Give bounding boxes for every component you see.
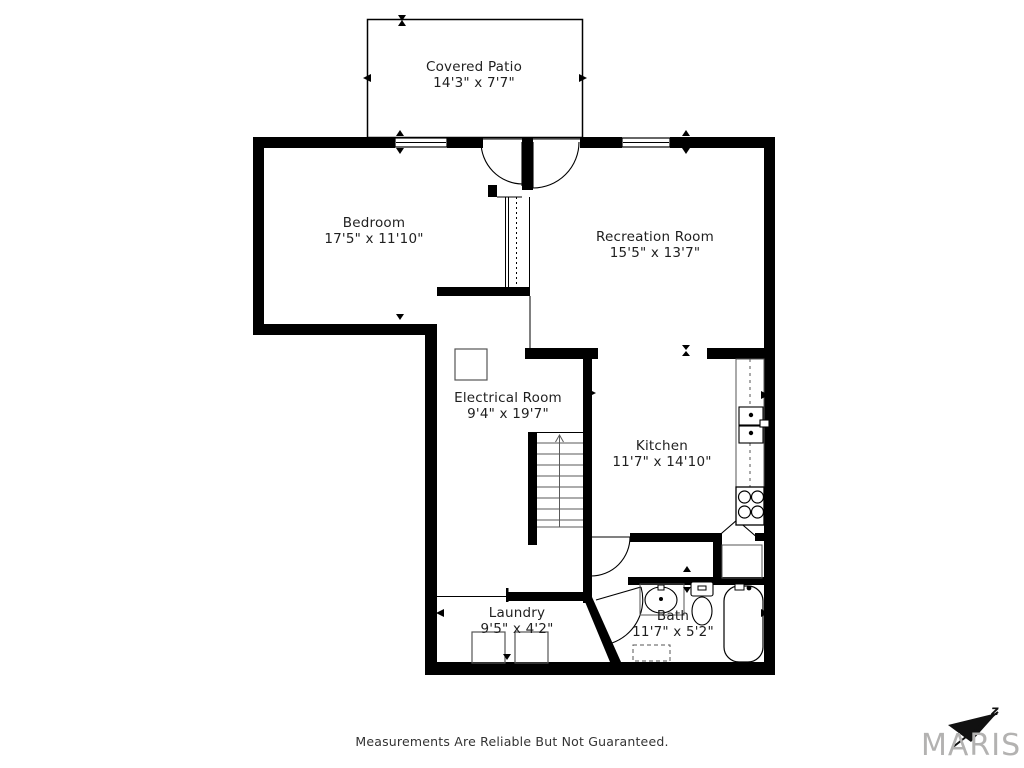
bath-door-leaf: [596, 587, 641, 600]
dimension-marker: [436, 609, 444, 617]
dimension-marker: [682, 345, 690, 350]
tub-faucet: [735, 584, 744, 590]
staircase: [537, 433, 583, 528]
room-label-electrical-room: Electrical Room 9'4" x 19'7": [454, 390, 562, 422]
electrical-panel: [455, 349, 487, 380]
wall-segment: [425, 662, 775, 675]
floorplan-drawing: [0, 0, 1024, 768]
floorplan-canvas: Covered Patio 14'3" x 7'7" Bedroom 17'5"…: [0, 0, 1024, 768]
tub-drain: [747, 586, 752, 591]
room-dims: 11'7" x 5'2": [632, 624, 714, 640]
vanity-faucet: [658, 585, 664, 590]
room-label-laundry: Laundry 9'5" x 4'2": [481, 605, 554, 637]
dimension-markers: [256, 15, 772, 660]
room-dims: 15'5" x 13'7": [596, 245, 714, 261]
dimension-marker: [683, 566, 691, 572]
wall-segment: [580, 137, 622, 148]
room-name: Electrical Room: [454, 390, 562, 406]
room-name: Bath: [657, 608, 689, 624]
wall-segment: [528, 432, 537, 545]
room-name: Bedroom: [343, 215, 405, 231]
wall-segment: [630, 533, 713, 542]
disclaimer-text: Measurements Are Reliable But Not Guaran…: [355, 734, 668, 749]
dimension-marker: [503, 654, 511, 660]
wall-segment: [253, 137, 395, 148]
sink-drain: [749, 431, 753, 435]
wall-segment-diagonal: [583, 597, 621, 662]
wall-segment: [253, 137, 264, 335]
room-dims: 17'5" x 11'10": [324, 231, 423, 247]
dimension-marker: [396, 314, 404, 320]
room-label-covered-patio: Covered Patio 14'3" x 7'7": [426, 59, 522, 91]
patio-door-left-swing: [481, 142, 522, 184]
room-label-bedroom: Bedroom 17'5" x 11'10": [324, 215, 423, 247]
dimension-marker: [396, 148, 404, 154]
dimension-marker: [398, 20, 406, 26]
wall-segment: [522, 137, 533, 190]
sink-drain: [749, 413, 753, 417]
room-dims: 9'5" x 4'2": [481, 621, 554, 637]
room-name: Laundry: [489, 605, 545, 621]
dimension-marker: [682, 351, 690, 356]
room-label-recreation-room: Recreation Room 15'5" x 13'7": [596, 229, 714, 261]
toilet-tank: [691, 582, 713, 596]
wall-segment: [670, 137, 775, 148]
bath-floor-vent: [633, 645, 670, 661]
room-label-kitchen: Kitchen 11'7" x 14'10": [612, 438, 711, 470]
wall-segment: [583, 348, 592, 603]
room-name: Kitchen: [636, 438, 688, 454]
hall-door-swing: [591, 537, 630, 576]
wall-segment: [437, 287, 530, 296]
patio-door-right-swing: [533, 142, 579, 188]
wall-segment: [508, 592, 587, 601]
dimension-marker: [682, 130, 690, 136]
wall-segment: [764, 137, 775, 675]
wall-segment: [488, 185, 497, 197]
room-dims: 9'4" x 19'7": [454, 406, 562, 422]
sink-faucet: [760, 420, 769, 427]
wall-segment: [253, 324, 437, 335]
dimension-marker: [506, 588, 509, 602]
room-dims: 14'3" x 7'7": [426, 75, 522, 91]
maris-logo-text: MARIS: [921, 731, 1021, 761]
wall-segment: [707, 348, 764, 359]
pantry-shelf: [722, 545, 762, 578]
bathtub: [724, 586, 763, 662]
room-label-bath: Bath 11'7" x 5'2": [632, 608, 714, 640]
dimension-marker: [396, 130, 404, 136]
room-dims: 11'7" x 14'10": [612, 454, 711, 470]
dimension-marker: [682, 148, 690, 154]
room-name: Covered Patio: [426, 59, 522, 75]
room-name: Recreation Room: [596, 229, 714, 245]
wall-segment: [447, 137, 483, 148]
vanity-drain: [659, 597, 663, 601]
wall-segment: [425, 324, 437, 673]
wall-segment: [713, 533, 722, 584]
maris-logo-z-mark: z: [991, 704, 999, 719]
